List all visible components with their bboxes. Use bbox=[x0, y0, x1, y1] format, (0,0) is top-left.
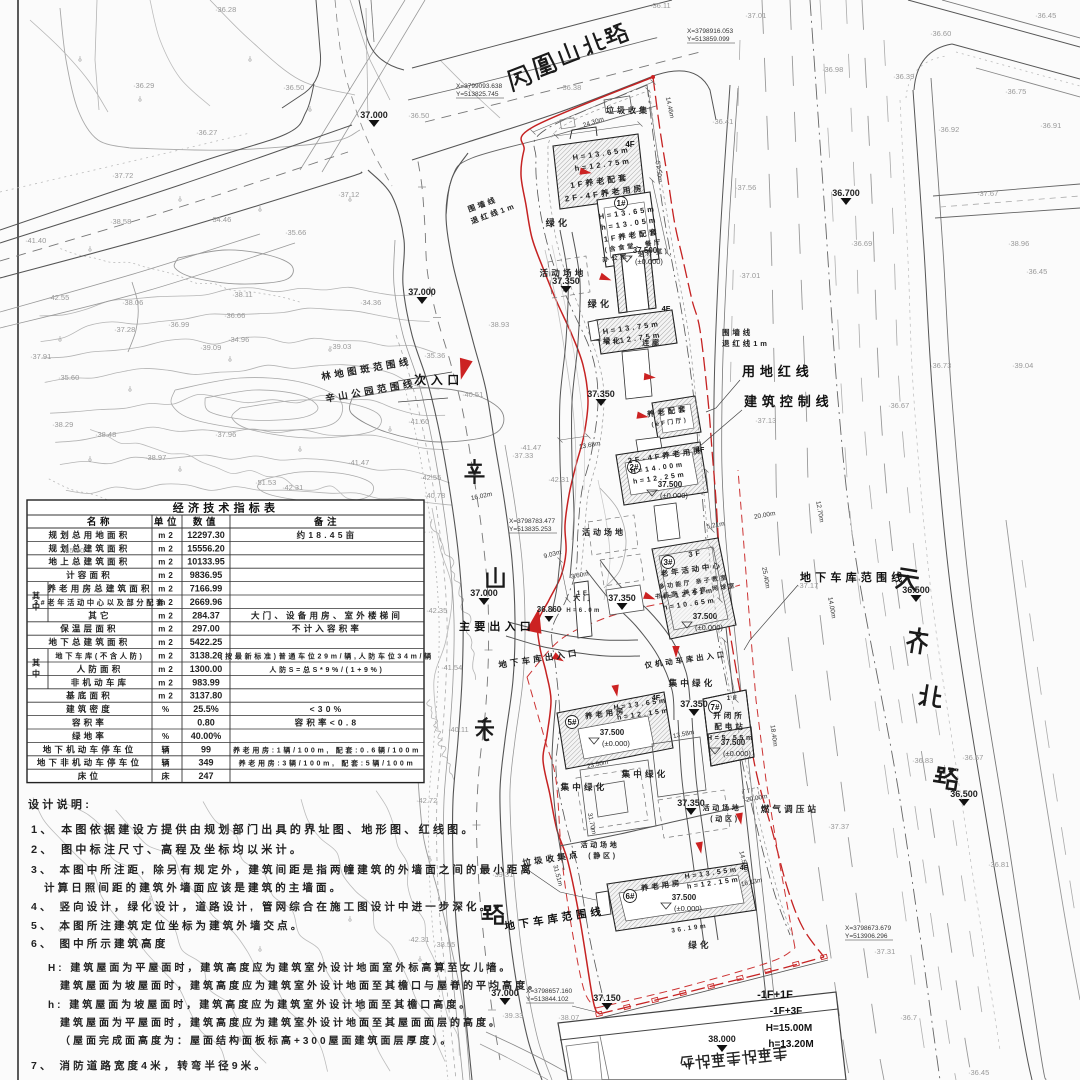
svg-text:·36.50: ·36.50 bbox=[283, 83, 304, 92]
svg-text:·36.69: ·36.69 bbox=[851, 239, 872, 248]
svg-text:·37.67: ·37.67 bbox=[977, 189, 998, 198]
svg-text:37.350: 37.350 bbox=[680, 699, 708, 709]
svg-text:·36.38: ·36.38 bbox=[560, 83, 581, 92]
svg-text:284.37: 284.37 bbox=[192, 610, 220, 620]
svg-text:·36.60: ·36.60 bbox=[930, 29, 951, 38]
svg-text:m2: m2 bbox=[158, 625, 176, 634]
svg-text:绿化: 绿化 bbox=[588, 298, 613, 309]
svg-text:·36.73: ·36.73 bbox=[930, 361, 951, 370]
svg-text:集中绿化: 集中绿化 bbox=[560, 782, 608, 792]
svg-text:·42.31: ·42.31 bbox=[282, 483, 303, 492]
svg-text:Y=513825.745: Y=513825.745 bbox=[456, 91, 499, 98]
svg-text:·35.36: ·35.36 bbox=[424, 351, 445, 360]
svg-text:·36.83: ·36.83 bbox=[912, 756, 933, 765]
svg-text:·36.92: ·36.92 bbox=[938, 125, 959, 134]
svg-text:m2: m2 bbox=[158, 678, 176, 687]
svg-text:·38.06: ·38.06 bbox=[122, 298, 143, 307]
svg-text:·51.53: ·51.53 bbox=[255, 478, 276, 487]
svg-text:1#: 1# bbox=[617, 199, 626, 208]
svg-text:·37.33: ·37.33 bbox=[512, 451, 533, 460]
svg-text:36.860: 36.860 bbox=[537, 605, 562, 614]
svg-text:H=5.55m: H=5.55m bbox=[707, 735, 755, 742]
svg-text:·42.35: ·42.35 bbox=[426, 606, 447, 615]
svg-text:37.000: 37.000 bbox=[408, 287, 436, 297]
svg-text:m2: m2 bbox=[158, 585, 176, 594]
svg-text:配电站: 配电站 bbox=[714, 721, 745, 731]
svg-text:·37.28: ·37.28 bbox=[114, 325, 135, 334]
svg-text:36.500: 36.500 bbox=[950, 789, 978, 799]
svg-text:·38.97: ·38.97 bbox=[145, 453, 166, 462]
svg-text:(±0.000): (±0.000) bbox=[660, 491, 688, 500]
svg-text:·38.96: ·38.96 bbox=[1008, 239, 1029, 248]
svg-text:规划总用地面积: 规划总用地面积 bbox=[49, 530, 131, 540]
svg-text:非机动车库: 非机动车库 bbox=[71, 677, 130, 687]
svg-text:·36.98: ·36.98 bbox=[822, 65, 843, 74]
svg-text:·45.60: ·45.60 bbox=[63, 546, 84, 555]
svg-text:·36.27: ·36.27 bbox=[196, 128, 217, 137]
svg-text:垃圾收集: 垃圾收集 bbox=[606, 105, 650, 115]
svg-text:地下机动车停车位: 地下机动车停车位 bbox=[43, 744, 137, 754]
svg-text:m2: m2 bbox=[158, 544, 176, 553]
svg-text:37.350: 37.350 bbox=[587, 389, 615, 399]
svg-text:3137.80: 3137.80 bbox=[190, 691, 223, 701]
svg-text:活动场地: 活动场地 bbox=[540, 268, 587, 278]
svg-text:绿化: 绿化 bbox=[688, 940, 711, 950]
svg-text:建筑屋面为坡屋面时，建筑高度应为建筑室外设计地面至其檐口与屋: 建筑屋面为坡屋面时，建筑高度应为建筑室外设计地面至其檐口与屋脊的平均高度。 bbox=[59, 979, 541, 992]
svg-text:h=13.20M: h=13.20M bbox=[768, 1039, 813, 1050]
svg-text:15556.20: 15556.20 bbox=[187, 543, 225, 553]
svg-text:3、 本图中所注距, 除另有规定外，建筑间距是指两幢建筑的外: 3、 本图中所注距, 除另有规定外，建筑间距是指两幢建筑的外墙面之间的最小距离 bbox=[31, 863, 534, 876]
svg-text:其它: 其它 bbox=[88, 610, 111, 620]
svg-text:养老用房:3辆/100m, 配套:5辆/100m: 养老用房:3辆/100m, 配套:5辆/100m bbox=[238, 759, 416, 768]
svg-text:活动场地: 活动场地 bbox=[581, 840, 620, 849]
svg-text:养老用房:1辆/100m, 配套:0.6辆/100m: 养老用房:1辆/100m, 配套:0.6辆/100m bbox=[232, 745, 421, 754]
svg-text:-1F+3F: -1F+3F bbox=[770, 1006, 803, 1017]
svg-text:地下车库(不含人防): 地下车库(不含人防) bbox=[55, 652, 144, 661]
svg-text:X=3798673.679: X=3798673.679 bbox=[845, 925, 891, 932]
svg-text:不计入容积率: 不计入容积率 bbox=[292, 624, 362, 634]
svg-text:4、 竖向设计，绿化设计，道路设计, 管网综合在施工图设计中: 4、 竖向设计，绿化设计，道路设计, 管网综合在施工图设计中进一步深化。 bbox=[31, 900, 493, 913]
svg-text:(±0.000): (±0.000) bbox=[723, 749, 751, 758]
svg-text:·36.7: ·36.7 bbox=[900, 1013, 917, 1022]
svg-text:数值: 数值 bbox=[192, 516, 219, 528]
svg-text:<30%: <30% bbox=[310, 704, 345, 714]
svg-text:m2: m2 bbox=[158, 558, 176, 567]
svg-text:·40.51: ·40.51 bbox=[462, 390, 483, 399]
svg-text:(按最新标准)普通车位29m/辆,人防车位34m/辆: (按最新标准)普通车位29m/辆,人防车位34m/辆 bbox=[220, 652, 434, 661]
svg-text:·41.47: ·41.47 bbox=[348, 458, 369, 467]
svg-text:·39.09: ·39.09 bbox=[200, 343, 221, 352]
svg-text:·38.29: ·38.29 bbox=[52, 420, 73, 429]
svg-text:37.500: 37.500 bbox=[600, 728, 625, 737]
svg-text:m2: m2 bbox=[158, 611, 176, 620]
svg-text:养老用房总建筑面积: 养老用房总建筑面积 bbox=[46, 584, 152, 594]
svg-text:·38.48: ·38.48 bbox=[95, 430, 116, 439]
svg-text:·40.11: ·40.11 bbox=[448, 725, 469, 734]
svg-text:·38.93: ·38.93 bbox=[488, 320, 509, 329]
svg-text:·36.66: ·36.66 bbox=[224, 311, 245, 320]
svg-text:·36.75: ·36.75 bbox=[1005, 87, 1026, 96]
svg-text:·37.01: ·37.01 bbox=[739, 271, 760, 280]
svg-text:退红线1m: 退红线1m bbox=[722, 338, 770, 348]
svg-text:m2: m2 bbox=[158, 531, 176, 540]
svg-text:用地红线: 用地红线 bbox=[741, 364, 814, 379]
svg-text:H: 建筑屋面为平屋面时，建筑高度应为建筑室外设计地面室外标: H: 建筑屋面为平屋面时，建筑高度应为建筑室外设计地面室外标高算至女儿墙。 bbox=[48, 961, 512, 974]
svg-text:开闭所: 开闭所 bbox=[713, 710, 744, 720]
svg-text:m2: m2 bbox=[158, 598, 176, 607]
svg-text:·35.60: ·35.60 bbox=[58, 373, 79, 382]
svg-text:37.000: 37.000 bbox=[470, 588, 498, 598]
svg-text:3138.26: 3138.26 bbox=[190, 651, 223, 661]
svg-text:m2: m2 bbox=[158, 665, 176, 674]
svg-text:集中绿化: 集中绿化 bbox=[621, 769, 669, 779]
svg-text:地上总建筑面积: 地上总建筑面积 bbox=[49, 557, 131, 567]
svg-text:建筑密度: 建筑密度 bbox=[65, 704, 113, 714]
svg-text:h: 建筑屋面为坡屋面时，建筑高度应为建筑室外设计地面至其檐: h: 建筑屋面为坡屋面时，建筑高度应为建筑室外设计地面至其檐口高度。 bbox=[48, 998, 472, 1011]
svg-text:37.500: 37.500 bbox=[693, 612, 718, 621]
svg-text:·36.50: ·36.50 bbox=[408, 111, 429, 120]
svg-text:10133.95: 10133.95 bbox=[187, 557, 225, 567]
svg-text:37.000: 37.000 bbox=[360, 110, 388, 120]
svg-text:·37.37: ·37.37 bbox=[828, 822, 849, 831]
svg-text:人防S=总S*9%/(1+9%): 人防S=总S*9%/(1+9%) bbox=[269, 665, 384, 674]
svg-text:·36.99: ·36.99 bbox=[168, 320, 189, 329]
svg-text:0.80: 0.80 bbox=[197, 718, 215, 728]
svg-text:X=3798916.053: X=3798916.053 bbox=[687, 28, 733, 35]
svg-text:297.00: 297.00 bbox=[192, 624, 220, 634]
svg-text:5#: 5# bbox=[568, 718, 577, 727]
svg-text:X=3798783.477: X=3798783.477 bbox=[509, 518, 555, 525]
svg-text:名称: 名称 bbox=[87, 516, 113, 528]
svg-text:37.350: 37.350 bbox=[677, 798, 705, 808]
svg-text:7、 消防道路宽度4米，转弯半径9米。: 7、 消防道路宽度4米，转弯半径9米。 bbox=[31, 1059, 268, 1072]
svg-text:·36.41: ·36.41 bbox=[712, 117, 733, 126]
svg-text:247: 247 bbox=[198, 771, 213, 781]
svg-text:4F: 4F bbox=[652, 695, 661, 702]
svg-text:·40.78: ·40.78 bbox=[424, 491, 445, 500]
svg-text:活动场地: 活动场地 bbox=[703, 803, 742, 812]
svg-text:·37.17: ·37.17 bbox=[797, 581, 818, 590]
svg-text:（屋面完成面高度为：屋面结构面板标高+300屋面建筑面层厚度: （屋面完成面高度为：屋面结构面板标高+300屋面建筑面层厚度）。 bbox=[60, 1034, 454, 1047]
svg-text:·41.60: ·41.60 bbox=[408, 417, 429, 426]
svg-text:·39.03: ·39.03 bbox=[330, 342, 351, 351]
svg-text:约18.45亩: 约18.45亩 bbox=[297, 530, 358, 540]
svg-text:·37.12: ·37.12 bbox=[338, 190, 359, 199]
svg-text:%: % bbox=[162, 732, 172, 741]
svg-text:36.700: 36.700 bbox=[832, 188, 860, 198]
svg-text:99: 99 bbox=[201, 744, 211, 754]
svg-text:·36.11: ·36.11 bbox=[650, 1, 671, 10]
svg-text:(动区): (动区) bbox=[710, 814, 739, 823]
svg-text:·34.96: ·34.96 bbox=[228, 335, 249, 344]
svg-text:4F: 4F bbox=[662, 304, 671, 313]
svg-text:辆: 辆 bbox=[162, 744, 173, 754]
svg-text:%: % bbox=[162, 705, 172, 714]
svg-text:·36.39: ·36.39 bbox=[893, 72, 914, 81]
svg-text:备注: 备注 bbox=[313, 516, 340, 528]
svg-text:12297.30: 12297.30 bbox=[187, 530, 225, 540]
svg-text:m2: m2 bbox=[158, 692, 176, 701]
svg-text:·38.58: ·38.58 bbox=[110, 217, 131, 226]
svg-text:地下总建筑面积: 地下总建筑面积 bbox=[49, 637, 131, 647]
svg-text:主要出入口: 主要出入口 bbox=[459, 619, 535, 633]
svg-text:燃气调压站: 燃气调压站 bbox=[761, 804, 820, 814]
svg-text:(±0.000): (±0.000) bbox=[695, 623, 723, 632]
svg-text:m2: m2 bbox=[158, 652, 176, 661]
svg-text:·36.29: ·36.29 bbox=[133, 81, 154, 90]
svg-text:·41.54: ·41.54 bbox=[441, 663, 462, 672]
svg-text:大门、设备用房、室外楼梯间: 大门、设备用房、室外楼梯间 bbox=[251, 610, 403, 620]
svg-text:36.500: 36.500 bbox=[902, 585, 930, 595]
svg-text:3#: 3# bbox=[664, 558, 673, 567]
svg-text:·36.91: ·36.91 bbox=[1040, 121, 1061, 130]
svg-text:·39.04: ·39.04 bbox=[1012, 361, 1033, 370]
svg-text:建筑控制线: 建筑控制线 bbox=[744, 394, 834, 409]
svg-text:·34.36: ·34.36 bbox=[360, 298, 381, 307]
svg-text:-1F+1F: -1F+1F bbox=[757, 989, 793, 1001]
svg-text:人防面积: 人防面积 bbox=[77, 664, 124, 674]
svg-text:·37.56: ·37.56 bbox=[735, 183, 756, 192]
svg-text:·36.28: ·36.28 bbox=[215, 5, 236, 14]
svg-text:37.000: 37.000 bbox=[491, 988, 519, 998]
svg-text:·37.72: ·37.72 bbox=[112, 171, 133, 180]
svg-text:容积率: 容积率 bbox=[71, 718, 107, 728]
svg-text:床位: 床位 bbox=[78, 771, 101, 781]
svg-text:其: 其 bbox=[32, 658, 43, 668]
svg-text:37.350: 37.350 bbox=[608, 593, 636, 603]
svg-text:Y=513835.253: Y=513835.253 bbox=[509, 526, 552, 533]
svg-text:·38.11: ·38.11 bbox=[232, 290, 253, 299]
svg-text:规划总建筑面积: 规划总建筑面积 bbox=[49, 543, 131, 553]
svg-text:保温层面积: 保温层面积 bbox=[59, 624, 119, 634]
svg-text:6、 图中所示建筑高度: 6、 图中所示建筑高度 bbox=[31, 937, 168, 950]
svg-text:中: 中 bbox=[32, 602, 43, 612]
svg-text:活动场地: 活动场地 bbox=[582, 527, 626, 537]
svg-text:大门: 大门 bbox=[573, 593, 592, 602]
svg-text:围墙线: 围墙线 bbox=[722, 327, 753, 337]
svg-text:5、 本图所注建筑定位坐标为建筑外墙交点。: 5、 本图所注建筑定位坐标为建筑外墙交点。 bbox=[31, 919, 304, 932]
svg-text:·37.91: ·37.91 bbox=[30, 352, 51, 361]
svg-text:·37.01: ·37.01 bbox=[745, 11, 766, 20]
svg-text:3#老年活动中心以及部分配套: 3#老年活动中心以及部分配套 bbox=[34, 598, 166, 607]
svg-text:38.000: 38.000 bbox=[708, 1034, 736, 1044]
svg-text:·42.72: ·42.72 bbox=[416, 796, 437, 805]
svg-text:·36.57: ·36.57 bbox=[962, 753, 983, 762]
svg-text:37.500: 37.500 bbox=[672, 893, 697, 902]
svg-text:·42.31: ·42.31 bbox=[408, 935, 429, 944]
svg-text:1300.00: 1300.00 bbox=[190, 664, 223, 674]
svg-text:·36.45: ·36.45 bbox=[1035, 11, 1056, 20]
svg-text:其: 其 bbox=[32, 591, 43, 601]
svg-text:容积率<0.8: 容积率<0.8 bbox=[294, 718, 360, 728]
svg-text:·39.33: ·39.33 bbox=[502, 1011, 523, 1020]
svg-text:6#: 6# bbox=[626, 892, 635, 901]
svg-text:2669.96: 2669.96 bbox=[190, 597, 223, 607]
svg-text:·42.55: ·42.55 bbox=[420, 473, 441, 482]
svg-text:5422.25: 5422.25 bbox=[190, 637, 223, 647]
svg-text:Y=513859.099: Y=513859.099 bbox=[687, 36, 730, 43]
svg-text:m2: m2 bbox=[158, 571, 176, 580]
svg-text:349: 349 bbox=[198, 758, 213, 768]
svg-text:m2: m2 bbox=[158, 638, 176, 647]
svg-text:集中绿化: 集中绿化 bbox=[668, 678, 716, 688]
svg-text:绿地率: 绿地率 bbox=[72, 731, 107, 741]
svg-text:2、 图中标注尺寸、高程及坐标均以米计。: 2、 图中标注尺寸、高程及坐标均以米计。 bbox=[31, 842, 304, 856]
svg-text:7166.99: 7166.99 bbox=[190, 584, 223, 594]
svg-text:40.00%: 40.00% bbox=[191, 731, 222, 741]
svg-text:计容面积: 计容面积 bbox=[66, 570, 113, 580]
svg-text:·42.31: ·42.31 bbox=[548, 475, 569, 484]
svg-text:(±0.000): (±0.000) bbox=[674, 904, 702, 913]
svg-text:H=6.0m: H=6.0m bbox=[566, 608, 601, 614]
svg-text:·36.67: ·36.67 bbox=[888, 401, 909, 410]
svg-text:床: 床 bbox=[162, 771, 173, 781]
svg-text:37.150: 37.150 bbox=[593, 993, 621, 1003]
svg-text:H=15.00M: H=15.00M bbox=[766, 1023, 812, 1034]
svg-text:辆: 辆 bbox=[162, 758, 173, 768]
svg-text:4F: 4F bbox=[625, 140, 634, 149]
svg-text:·37.13: ·37.13 bbox=[755, 416, 776, 425]
svg-text:·37.31: ·37.31 bbox=[874, 947, 895, 956]
svg-text:983.99: 983.99 bbox=[192, 677, 220, 687]
svg-text:·34.46: ·34.46 bbox=[210, 215, 231, 224]
svg-text:经济技术指标表: 经济技术指标表 bbox=[173, 501, 279, 515]
svg-text:计算日照间距的建筑外墙面应该是建筑的主墙面。: 计算日照间距的建筑外墙面应该是建筑的主墙面。 bbox=[44, 881, 343, 894]
svg-text:·42.55: ·42.55 bbox=[48, 293, 69, 302]
svg-text:·36.81: ·36.81 bbox=[988, 860, 1009, 869]
svg-text:(±0.000): (±0.000) bbox=[602, 739, 630, 748]
svg-text:建筑屋面为平屋面时，建筑高度应为建筑室外设计地面至其屋面面层: 建筑屋面为平屋面时，建筑高度应为建筑室外设计地面至其屋面面层的高度。 bbox=[59, 1016, 502, 1029]
svg-text:中: 中 bbox=[32, 669, 43, 679]
svg-text:·36.45: ·36.45 bbox=[1026, 267, 1047, 276]
svg-text:(静区): (静区) bbox=[588, 851, 617, 860]
svg-text:·35.66: ·35.66 bbox=[285, 228, 306, 237]
svg-text:绿化: 绿化 bbox=[546, 217, 571, 228]
svg-text:Y=513844.102: Y=513844.102 bbox=[526, 996, 569, 1003]
svg-text:1F: 1F bbox=[727, 695, 740, 702]
svg-text:X=3798657.160: X=3798657.160 bbox=[526, 988, 572, 995]
svg-text:·36.45: ·36.45 bbox=[968, 1068, 989, 1077]
svg-text:基底面积: 基底面积 bbox=[65, 691, 113, 701]
svg-text:·41.40: ·41.40 bbox=[25, 236, 46, 245]
svg-text:设计说明:: 设计说明: bbox=[28, 797, 92, 811]
svg-text:1、 本图依据建设方提供由规划部门出具的界址图、地形图、红线: 1、 本图依据建设方提供由规划部门出具的界址图、地形图、红线图。 bbox=[31, 822, 476, 836]
svg-text:9836.95: 9836.95 bbox=[190, 570, 223, 580]
svg-text:·38.07: ·38.07 bbox=[558, 1013, 579, 1022]
svg-text:·38.55: ·38.55 bbox=[434, 940, 455, 949]
svg-text:地下非机动车停车位: 地下非机动车停车位 bbox=[37, 758, 142, 768]
svg-text:·39.31: ·39.31 bbox=[492, 870, 513, 879]
svg-text:X=3799093.638: X=3799093.638 bbox=[456, 83, 502, 90]
svg-text:25.5%: 25.5% bbox=[193, 704, 219, 714]
svg-text:单位: 单位 bbox=[154, 516, 180, 528]
svg-text:·37.96: ·37.96 bbox=[215, 430, 236, 439]
svg-text:Y=513906.296: Y=513906.296 bbox=[845, 933, 888, 940]
